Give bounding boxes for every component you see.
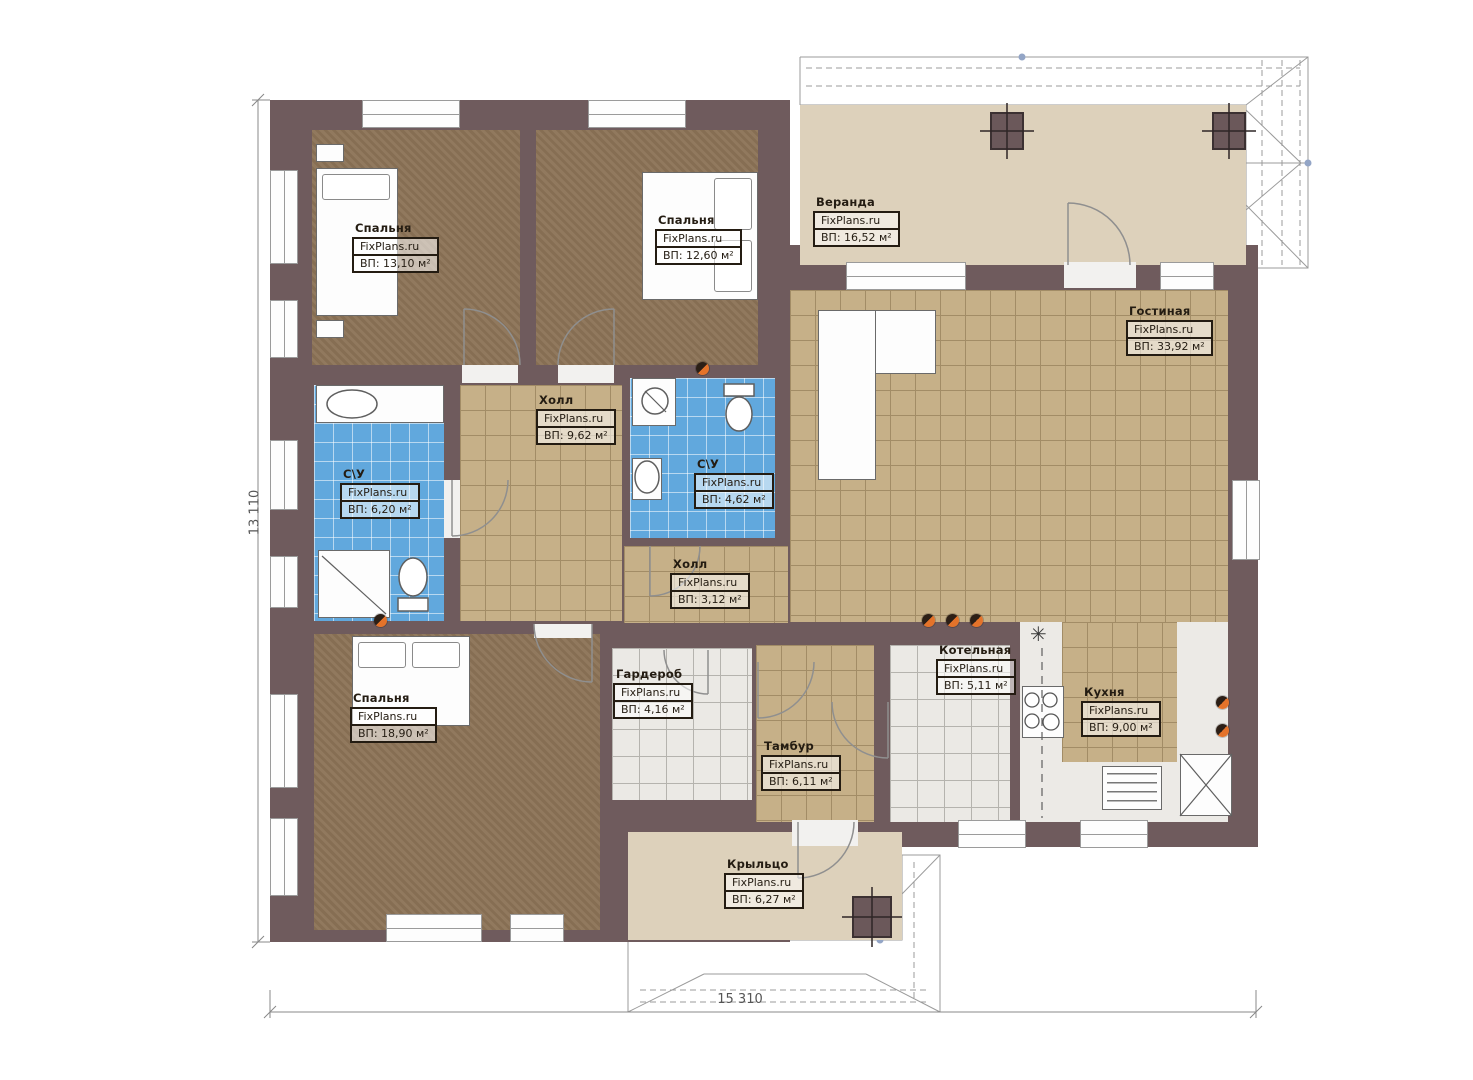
room-label-hall: Холл FixPlans.ru ВП: 9,62 м² — [536, 394, 616, 445]
fixplans-watermark: FixPlans.ru — [815, 213, 898, 228]
room-info-box: FixPlans.ru ВП: 4,16 м² — [613, 683, 693, 719]
vent-icon — [1216, 696, 1229, 709]
room-area: ВП: 6,20 м² — [342, 500, 418, 517]
vent-icon — [970, 614, 983, 627]
room-area: ВП: 6,11 м² — [763, 772, 839, 789]
sink-pedestal — [632, 458, 662, 500]
fixplans-watermark: FixPlans.ru — [726, 875, 802, 890]
room-label-wardrobe: Гардероб FixPlans.ru ВП: 4,16 м² — [613, 668, 693, 719]
room-info-box: FixPlans.ru ВП: 3,12 м² — [670, 573, 750, 609]
window — [270, 818, 298, 896]
room-name: Гостиная — [1129, 305, 1213, 318]
fixplans-watermark: FixPlans.ru — [538, 411, 614, 426]
fixplans-watermark: FixPlans.ru — [342, 485, 418, 500]
fixplans-watermark: FixPlans.ru — [615, 685, 691, 700]
door-opening — [462, 365, 518, 383]
room-area: ВП: 9,00 м² — [1083, 718, 1159, 735]
room-info-box: FixPlans.ru ВП: 5,11 м² — [936, 659, 1016, 695]
room-name: Крыльцо — [727, 858, 804, 871]
room-name: Спальня — [658, 214, 742, 227]
window — [958, 820, 1026, 848]
room-info-box: FixPlans.ru ВП: 12,60 м² — [655, 229, 742, 265]
room-area: ВП: 9,62 м² — [538, 426, 614, 443]
room-name: Котельная — [939, 644, 1016, 657]
vent-icon — [946, 614, 959, 627]
nightstand — [316, 144, 344, 162]
fridge — [1180, 754, 1232, 816]
room-label-bedroom-3: Спальня FixPlans.ru ВП: 18,90 м² — [350, 692, 437, 743]
dishwasher — [1102, 766, 1162, 810]
room-area: ВП: 18,90 м² — [352, 724, 435, 741]
room-area: ВП: 4,62 м² — [696, 490, 772, 507]
fixplans-watermark: FixPlans.ru — [352, 709, 435, 724]
window — [510, 914, 564, 942]
floor-tambour — [756, 645, 874, 822]
room-label-hall-2: Холл FixPlans.ru ВП: 3,12 м² — [670, 558, 750, 609]
room-area: ВП: 13,10 м² — [354, 254, 437, 271]
veranda-column — [990, 112, 1024, 150]
room-name: Веранда — [816, 196, 900, 209]
window — [386, 914, 482, 942]
room-area: ВП: 12,60 м² — [657, 246, 740, 263]
fixplans-watermark: FixPlans.ru — [657, 231, 740, 246]
room-area: ВП: 16,52 м² — [815, 228, 898, 245]
room-name: Спальня — [353, 692, 437, 705]
window — [270, 694, 298, 788]
sink-counter — [316, 385, 444, 423]
fixplans-watermark: FixPlans.ru — [696, 475, 772, 490]
door-opening — [534, 624, 592, 638]
veranda-door-opening — [1064, 262, 1136, 288]
vent-icon — [696, 362, 709, 375]
room-name: Холл — [539, 394, 616, 407]
dimension-height: 13 110 — [248, 463, 263, 563]
room-name: Тамбур — [764, 740, 841, 753]
window — [1232, 480, 1260, 560]
window — [1080, 820, 1148, 848]
room-info-box: FixPlans.ru ВП: 9,62 м² — [536, 409, 616, 445]
door-opening — [558, 365, 614, 383]
room-label-living-room: Гостиная FixPlans.ru ВП: 33,92 м² — [1126, 305, 1213, 356]
fixplans-watermark: FixPlans.ru — [938, 661, 1014, 676]
window — [270, 440, 298, 510]
room-label-bathroom-2: С\У FixPlans.ru ВП: 4,62 м² — [694, 458, 774, 509]
room-label-porch: Крыльцо FixPlans.ru ВП: 6,27 м² — [724, 858, 804, 909]
fixplans-watermark: FixPlans.ru — [672, 575, 748, 590]
window — [270, 300, 298, 358]
room-area: ВП: 33,92 м² — [1128, 337, 1211, 354]
washing-machine — [632, 378, 676, 426]
vent-icon — [374, 614, 387, 627]
room-label-bedroom-1: Спальня FixPlans.ru ВП: 13,10 м² — [352, 222, 439, 273]
room-info-box: FixPlans.ru ВП: 18,90 м² — [350, 707, 437, 743]
vent-icon — [1216, 724, 1229, 737]
room-label-tambour: Тамбур FixPlans.ru ВП: 6,11 м² — [761, 740, 841, 791]
room-info-box: FixPlans.ru ВП: 33,92 м² — [1126, 320, 1213, 356]
room-name: Гардероб — [616, 668, 693, 681]
room-label-boiler-room: Котельная FixPlans.ru ВП: 5,11 м² — [936, 644, 1016, 695]
window — [846, 262, 966, 290]
veranda-column — [1212, 112, 1246, 150]
bed-pillow — [358, 642, 406, 668]
room-info-box: FixPlans.ru ВП: 6,11 м² — [761, 755, 841, 791]
fixplans-watermark: FixPlans.ru — [1083, 703, 1159, 718]
room-label-kitchen: Кухня FixPlans.ru ВП: 9,00 м² — [1081, 686, 1161, 737]
porch-column — [852, 896, 892, 938]
room-info-box: FixPlans.ru ВП: 6,27 м² — [724, 873, 804, 909]
vent-icon — [922, 614, 935, 627]
room-area: ВП: 4,16 м² — [615, 700, 691, 717]
shower — [318, 550, 390, 618]
window — [270, 556, 298, 608]
window — [362, 100, 460, 128]
fixplans-watermark: FixPlans.ru — [763, 757, 839, 772]
door-opening — [444, 480, 460, 538]
room-info-box: FixPlans.ru ВП: 6,20 м² — [340, 483, 420, 519]
nightstand — [316, 320, 344, 338]
room-name: Кухня — [1084, 686, 1161, 699]
room-area: ВП: 6,27 м² — [726, 890, 802, 907]
fixplans-watermark: FixPlans.ru — [1128, 322, 1211, 337]
window — [270, 170, 298, 264]
floor-plan: ✳ Спальня FixPlans.ru ВП: 13,10 м² Спаль… — [0, 0, 1473, 1080]
room-label-bedroom-2: Спальня FixPlans.ru ВП: 12,60 м² — [655, 214, 742, 265]
room-info-box: FixPlans.ru ВП: 9,00 м² — [1081, 701, 1161, 737]
room-info-box: FixPlans.ru ВП: 4,62 м² — [694, 473, 774, 509]
room-name: Спальня — [355, 222, 439, 235]
dimension-width: 15 310 — [660, 992, 820, 1007]
window — [588, 100, 686, 128]
stove — [1022, 686, 1064, 738]
room-info-box: FixPlans.ru ВП: 13,10 м² — [352, 237, 439, 273]
window — [1160, 262, 1214, 290]
sofa — [818, 310, 876, 480]
room-info-box: FixPlans.ru ВП: 16,52 м² — [813, 211, 900, 247]
bed-pillow — [322, 174, 390, 200]
room-label-veranda: Веранда FixPlans.ru ВП: 16,52 м² — [813, 196, 900, 247]
room-name: Холл — [673, 558, 750, 571]
lamp-icon: ✳ — [1030, 622, 1047, 646]
room-area: ВП: 3,12 м² — [672, 590, 748, 607]
bed-pillow — [412, 642, 460, 668]
room-area: ВП: 5,11 м² — [938, 676, 1014, 693]
room-name: С\У — [697, 458, 774, 471]
room-label-bathroom-1: С\У FixPlans.ru ВП: 6,20 м² — [340, 468, 420, 519]
room-name: С\У — [343, 468, 420, 481]
fixplans-watermark: FixPlans.ru — [354, 239, 437, 254]
entrance-door-opening — [792, 820, 858, 846]
